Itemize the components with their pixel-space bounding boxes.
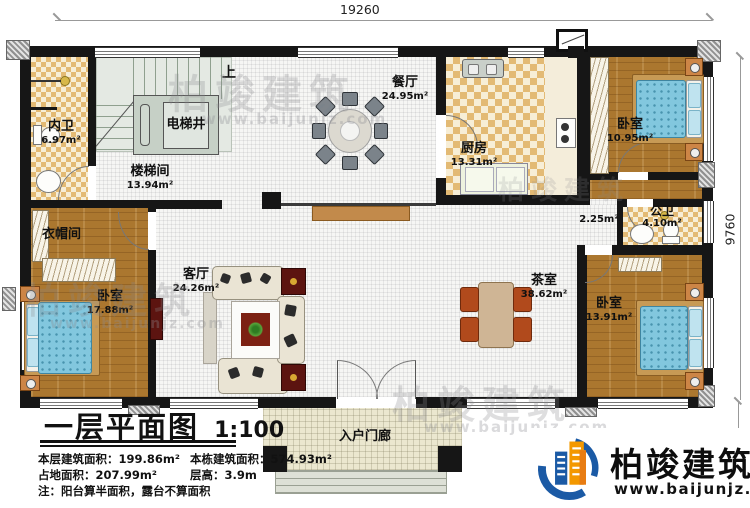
titleblock-note: 注：阳台算半面积，露台不算面积 [38, 483, 211, 499]
nightstand [685, 283, 704, 301]
company-name: 柏竣建筑 [610, 438, 750, 486]
wall-stub [262, 192, 281, 209]
nightstand [685, 143, 703, 161]
pillow [689, 339, 702, 367]
titleblock-line1a: 本层建筑面积：199.86m² [38, 451, 180, 467]
shower-knob-icon [60, 76, 70, 86]
dimension-top: 19260 [340, 2, 380, 17]
toilet-tank [662, 236, 680, 244]
window-bottom-brbedroom [598, 398, 688, 409]
sofa-cushion [284, 304, 297, 317]
dimension-right-line [740, 57, 741, 400]
hallway-area-label: 2.25m² [576, 214, 622, 225]
porch-column-right [438, 446, 462, 472]
watermark-url: www.baijunjz.com [202, 110, 387, 128]
room-label-gongwei: 公卫 4.10m² [634, 205, 690, 230]
room-label-loutijian: 楼梯间 13.94m² [110, 165, 190, 191]
dimension-top-line [55, 20, 712, 21]
sink-basin [468, 64, 479, 75]
titleblock-line2a: 占地面积：207.99m² [38, 467, 157, 483]
tea-chair [460, 287, 479, 312]
hatch-left [2, 287, 16, 311]
door-gap-innerbath [88, 166, 96, 200]
window-top-dining [298, 47, 398, 58]
hatch-right-mid [698, 162, 715, 188]
window-right-publicbath [703, 201, 714, 243]
hatch-top-left [6, 40, 30, 60]
sofa-cushion [240, 272, 252, 284]
washbasin-icon [36, 170, 61, 193]
shower-rail [31, 80, 61, 82]
cabinet-door [465, 167, 494, 192]
coffee-table [231, 301, 280, 359]
wall-innerbath-bottom [20, 200, 156, 208]
sofa-cushion [259, 272, 271, 284]
window-top-stairs [95, 47, 200, 58]
burner [561, 135, 569, 143]
watermark-text: 柏竣建筑 [498, 170, 630, 207]
porch-steps [275, 470, 447, 494]
room-label-neiwei: 内卫 6.97m² [34, 120, 88, 146]
flue-stem [568, 46, 584, 58]
trbedroom-wardrobe [590, 57, 609, 174]
room-label-woshi-bottom-right: 卧室 13.91m² [578, 297, 640, 323]
burner [561, 123, 569, 131]
hall-cabinet [312, 206, 410, 221]
title-underline-thin [40, 445, 236, 447]
side-table [281, 268, 306, 295]
sofa-cushion [228, 367, 241, 380]
room-label-yimaojian: 衣帽间 [42, 228, 81, 243]
room-label-woshi-top-right: 卧室 10.95m² [600, 118, 660, 144]
titleblock-line1b: 本栋建筑面积：574.93m² [190, 451, 332, 467]
door-gap-brbedroom [585, 245, 612, 255]
wall-innerbath-right [88, 57, 96, 166]
nightstand [685, 58, 703, 76]
title-underline-thick [40, 440, 236, 443]
company-logo: 柏竣建筑 www.baijunjz.com [530, 428, 750, 506]
elevator-counterweight [140, 104, 150, 146]
side-table [281, 364, 306, 391]
tea-chair [513, 317, 532, 342]
pillow [688, 83, 701, 108]
room-label-chufang: 厨房 13.31m² [440, 142, 508, 168]
flue-diagonal [562, 35, 585, 45]
lamp-icon [690, 63, 700, 73]
kitchen-sink [462, 59, 504, 78]
nightstand [20, 375, 40, 391]
sofa-cushion [283, 333, 298, 348]
room-label-porch: 入户门廊 [305, 430, 425, 445]
gold-ornament [290, 278, 297, 285]
lamp-icon [690, 377, 700, 387]
company-logo-icon [532, 430, 604, 502]
pillow [688, 110, 701, 135]
watermark-url: www.baijunjz.com [50, 316, 225, 332]
window-right-brbedroom [703, 298, 714, 368]
tea-table [478, 282, 514, 348]
plant-icon [248, 322, 263, 337]
lamp-icon [690, 288, 700, 298]
pillow [689, 309, 702, 337]
floor-plan-canvas: 19260 9760 1600 [0, 0, 750, 508]
room-label-canting: 餐厅 24.95m² [370, 76, 440, 102]
sink-basin [486, 64, 497, 75]
brbedroom-closet [618, 257, 662, 272]
tea-chair [460, 317, 479, 342]
room-label-chashi: 茶室 38.62m² [512, 274, 576, 300]
door-gap-cloakroom [148, 212, 156, 250]
stove-icon [556, 118, 576, 148]
window-right-trbedroom [703, 77, 714, 161]
titleblock-line2b: 层高：3.9m [190, 467, 257, 483]
company-website: www.baijunjz.com [614, 480, 750, 498]
window-top-kitchen [508, 47, 544, 58]
dimension-right: 9760 [722, 214, 737, 246]
gold-ornament [290, 374, 297, 381]
plan-title: 一层平面图 [44, 410, 199, 444]
wall-stairhall-bottom [156, 200, 222, 209]
sofa-cushion [252, 366, 264, 378]
bed-brbedroom [640, 306, 688, 370]
lamp-icon [690, 148, 700, 158]
lamp-icon [26, 379, 36, 389]
sofa-bottom [218, 358, 288, 394]
dining-chair [342, 156, 358, 170]
bath-partition [31, 107, 57, 110]
nightstand [685, 372, 704, 390]
sofa-right [277, 296, 305, 364]
